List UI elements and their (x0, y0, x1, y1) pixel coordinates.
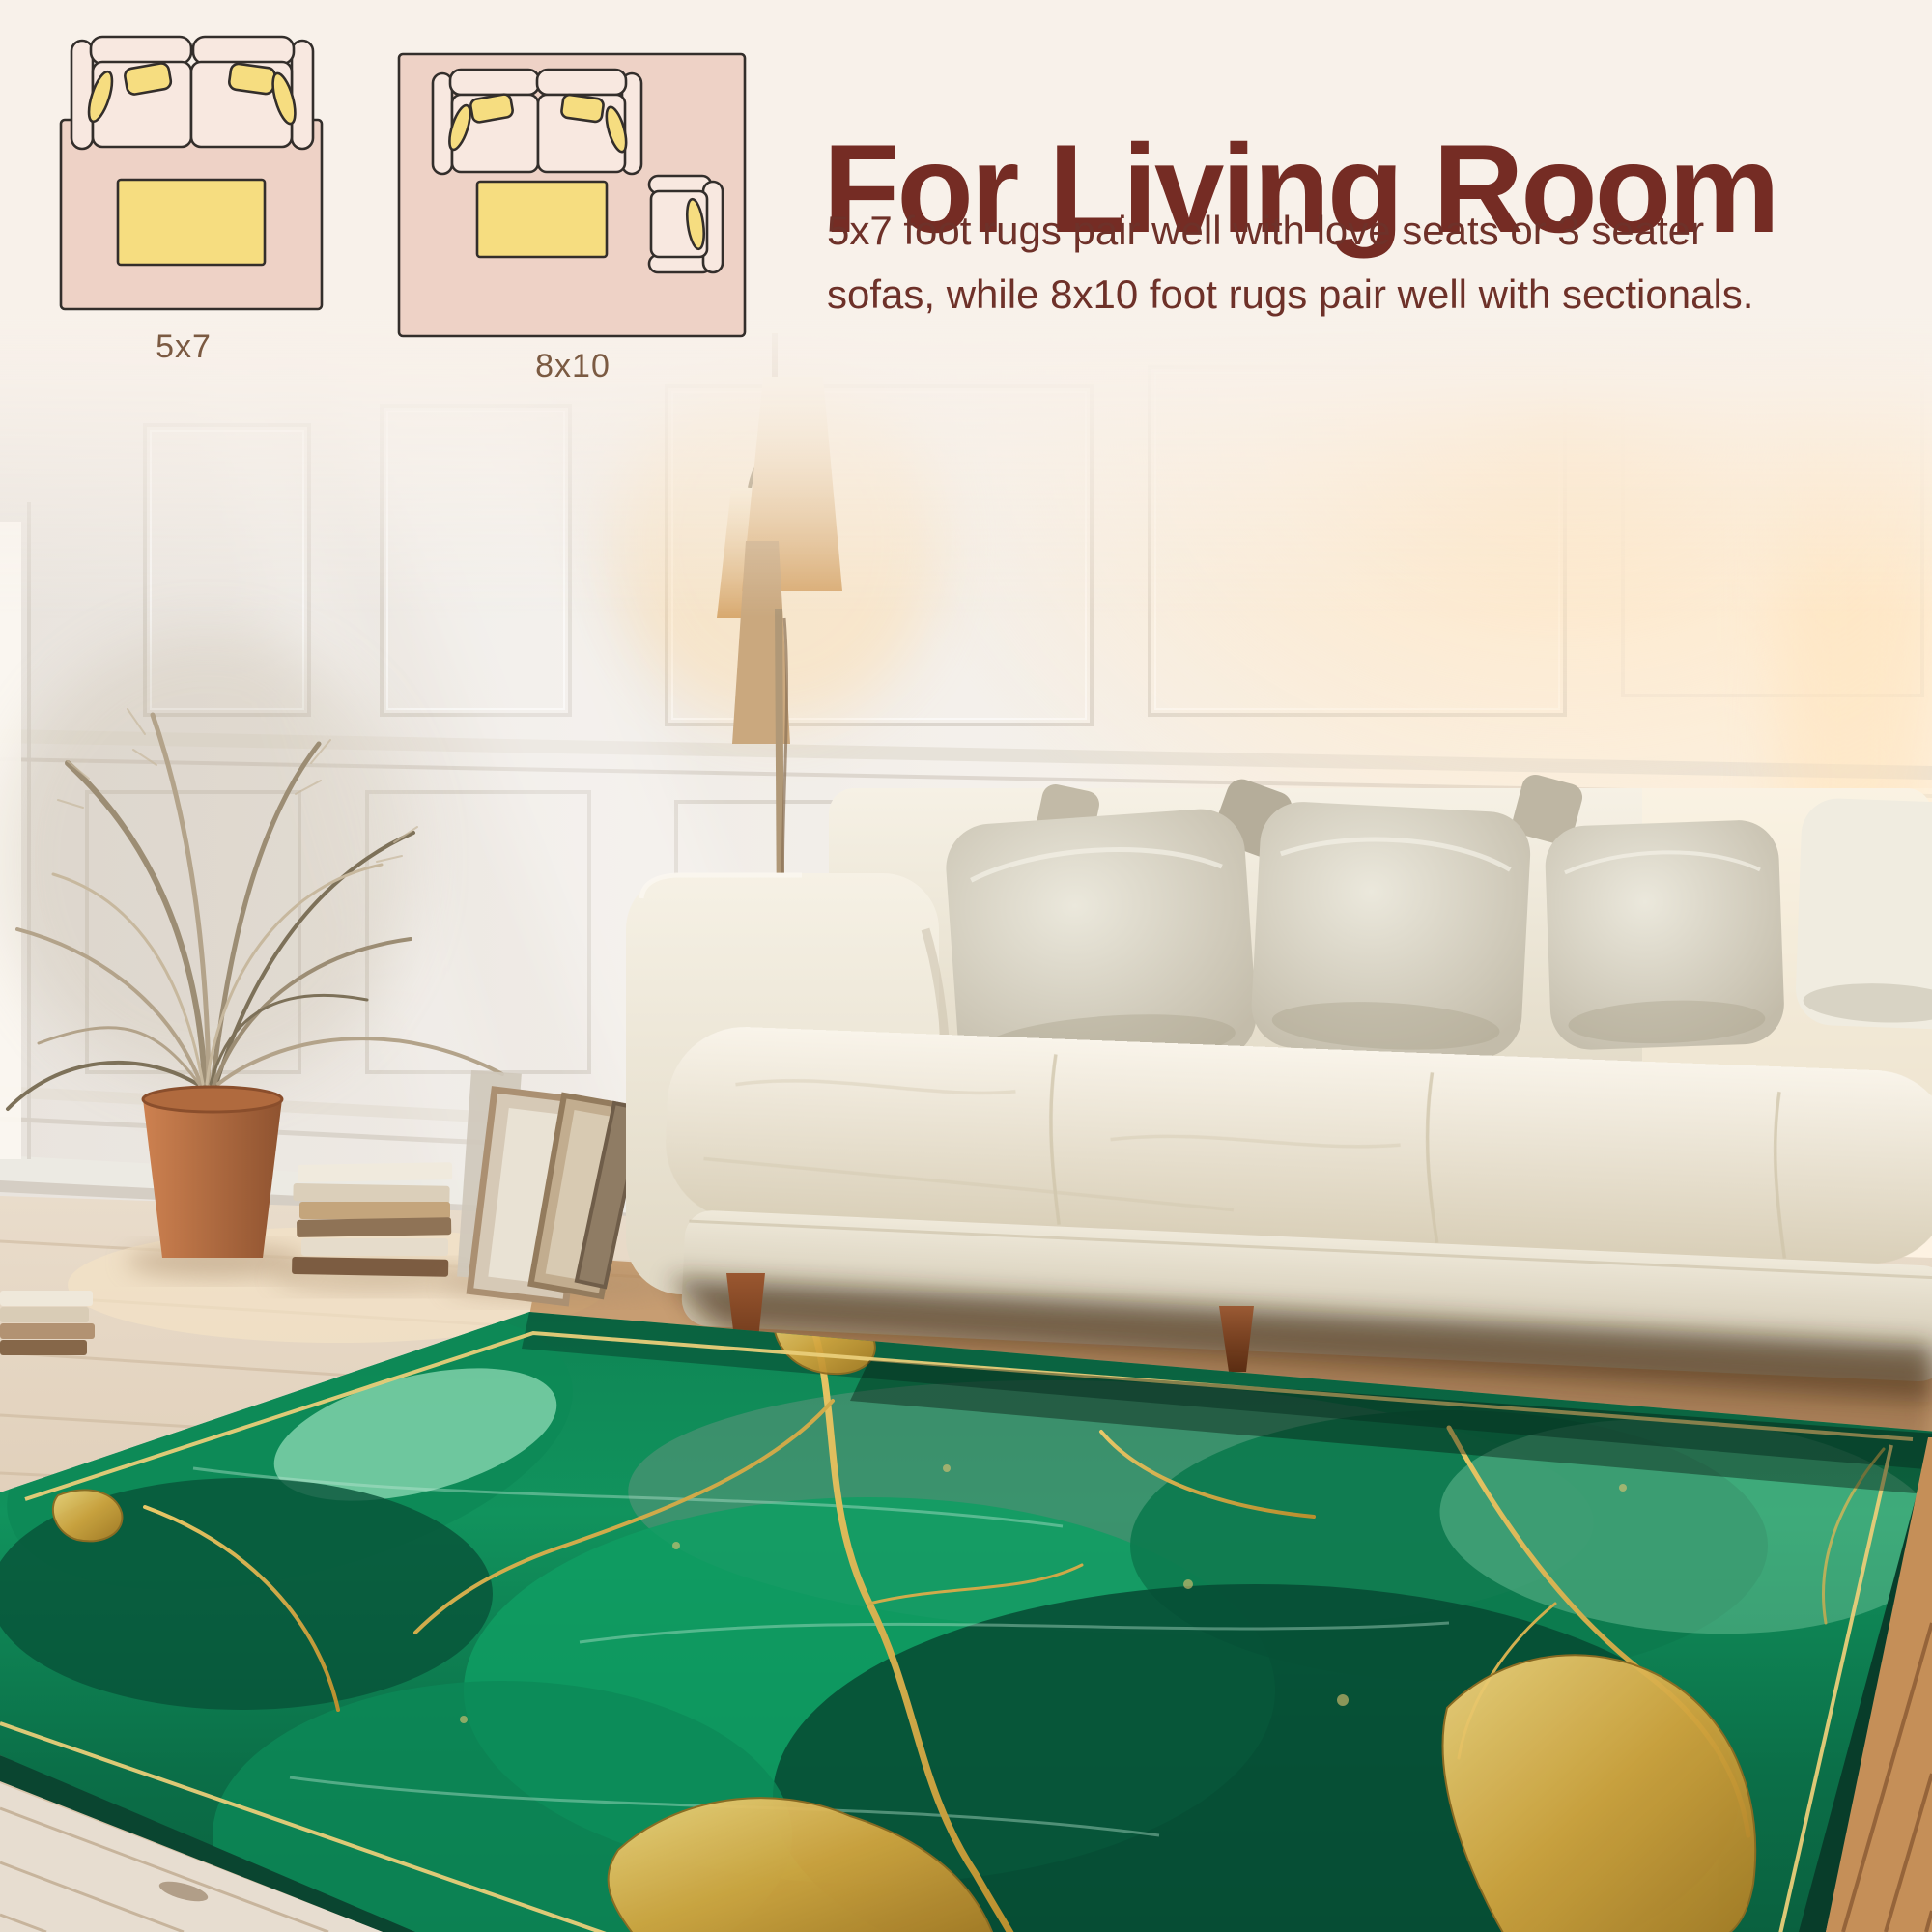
size-label-8x10: 8x10 (481, 348, 665, 385)
description-line-1: 5x7 foot rugs pair well with love seats … (827, 199, 1753, 263)
rug-product-infographic: 5x7 (0, 0, 1932, 1932)
sofa-top-view-icon (433, 70, 641, 174)
size-label-5x7: 5x7 (97, 328, 270, 366)
header-section: 5x7 (0, 0, 1932, 676)
sofa-pillow-icon (228, 63, 275, 95)
coffee-table-icon (477, 182, 607, 257)
throw-pillow (1544, 819, 1785, 1051)
sofa-pillow-icon (561, 94, 605, 123)
throw-pillow (1795, 797, 1932, 1030)
sofa-top-view-icon (71, 37, 313, 149)
armchair-icon (649, 176, 723, 272)
terracotta-pot (143, 1087, 282, 1258)
rug-size-diagram-8x10 (396, 46, 750, 342)
description-text: 5x7 foot rugs pair well with love seats … (827, 199, 1753, 327)
rug-size-diagram-5x7 (58, 35, 327, 317)
description-line-2: sofas, while 8x10 foot rugs pair well wi… (827, 263, 1753, 327)
coffee-table-icon (118, 180, 265, 265)
throw-pillow (1249, 800, 1532, 1060)
